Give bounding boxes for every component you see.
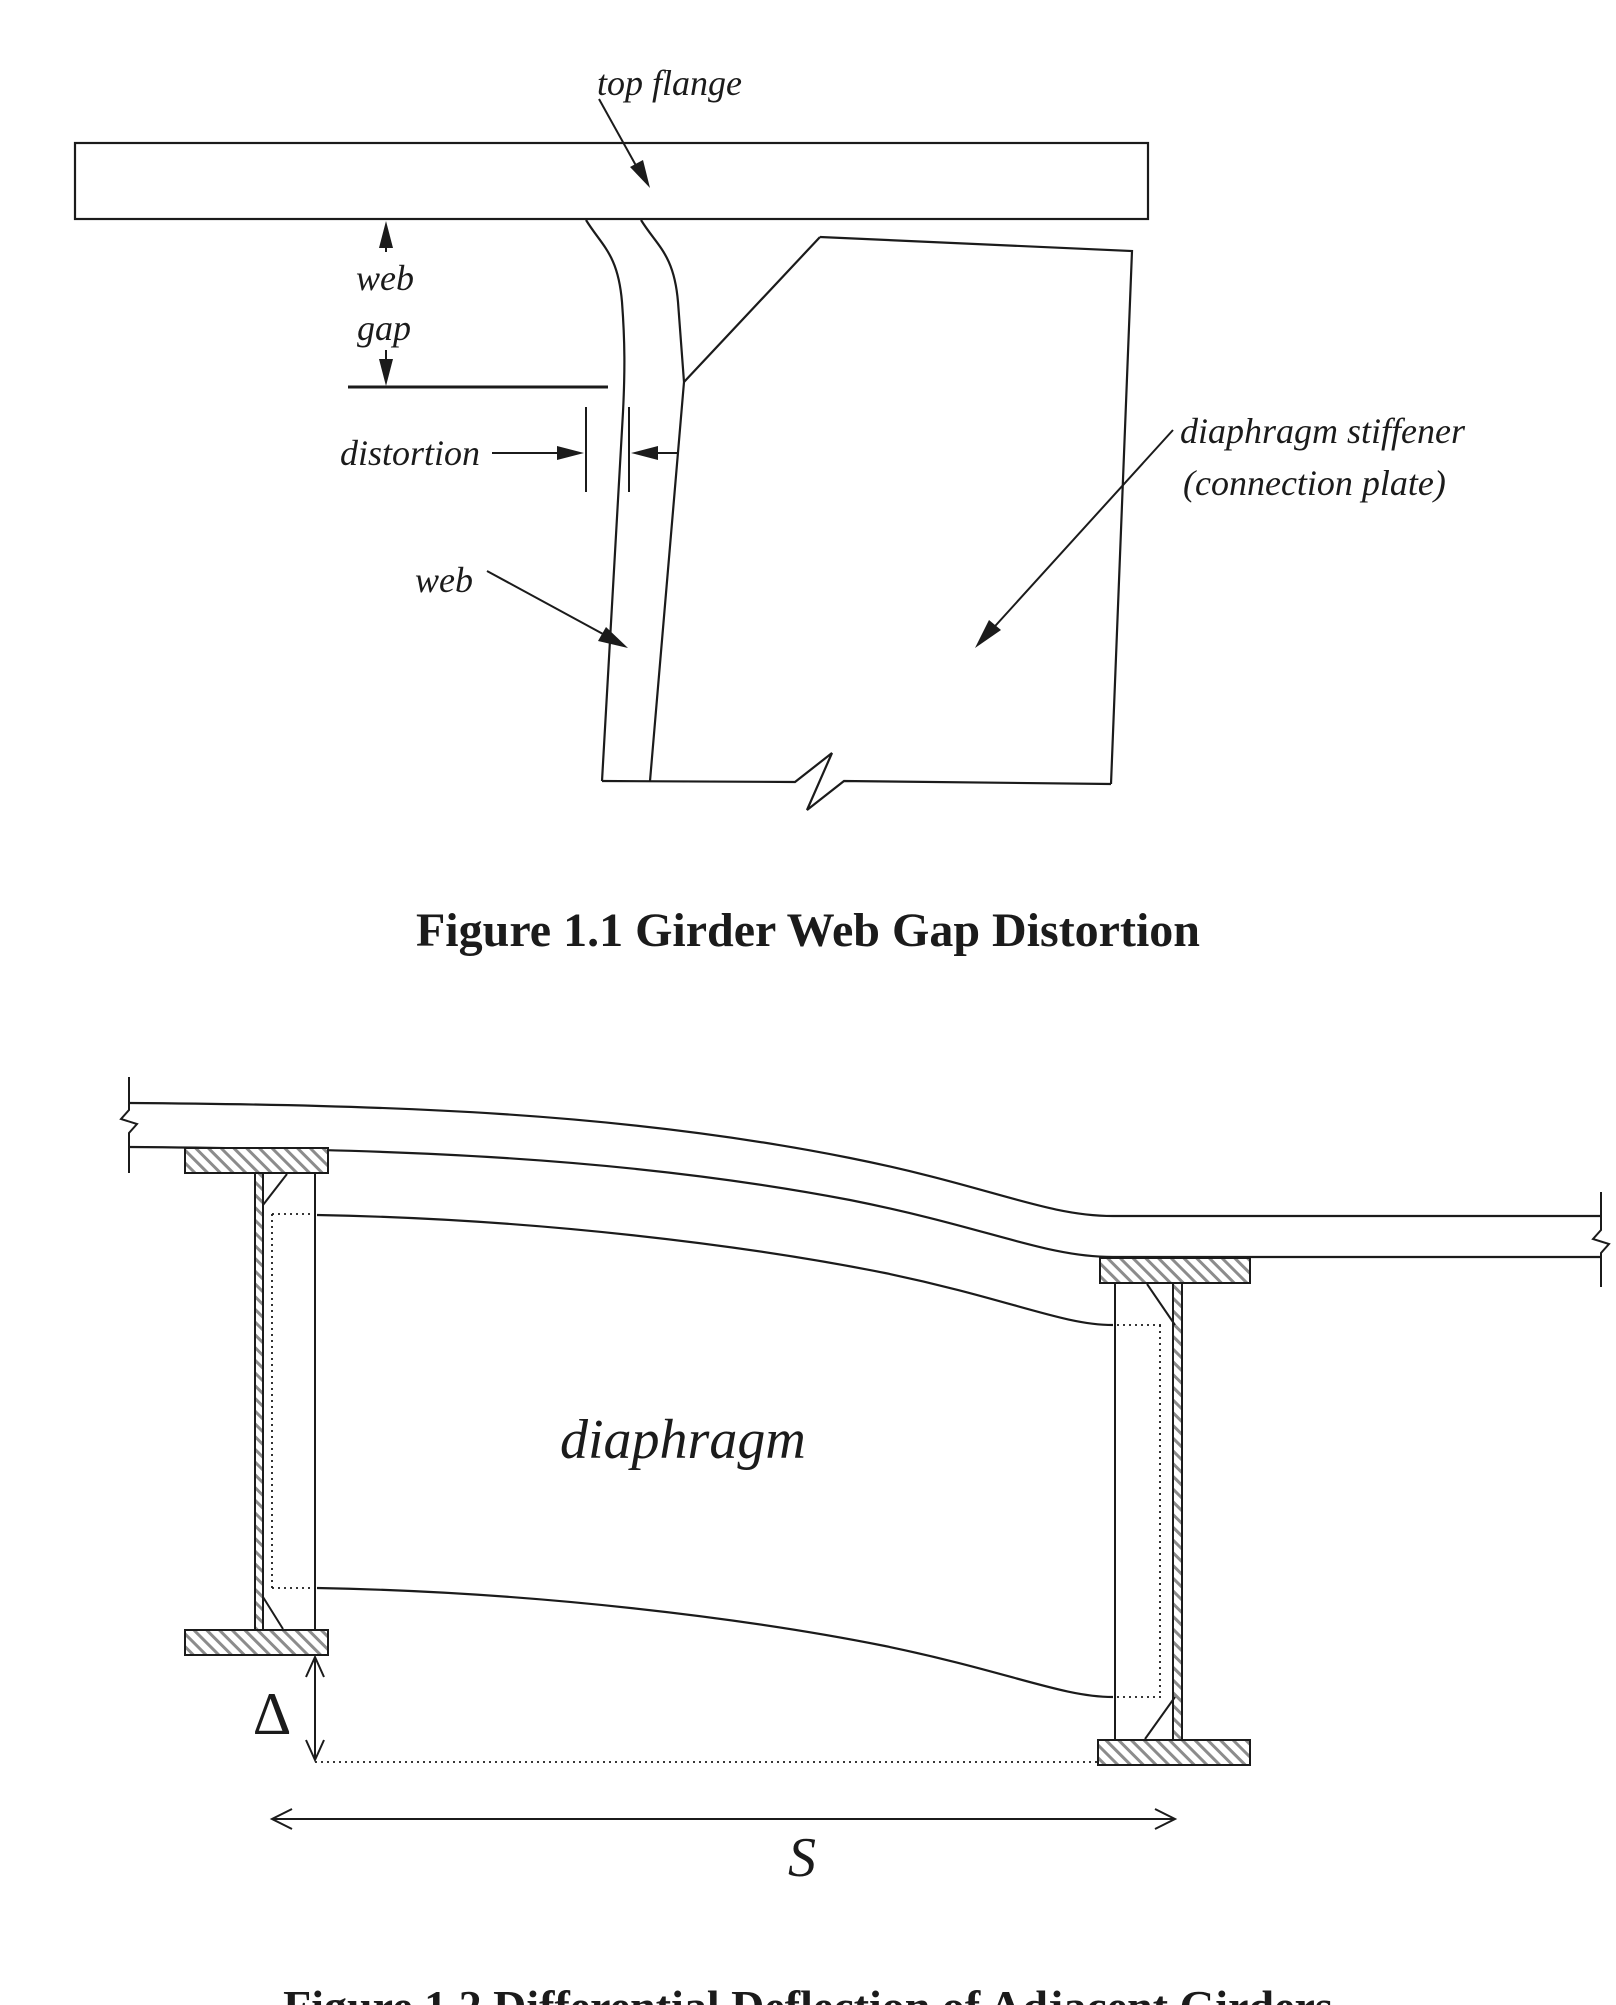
stiffener-label-line1: diaphragm stiffener [1180,411,1466,451]
delta-label: Δ [253,1681,292,1747]
web-left-edge-curve [586,220,624,781]
stiffener-leader-line [987,430,1173,635]
web-right-edge-curve [641,220,684,781]
right-girder-bottom-flange [1098,1740,1250,1765]
deck-top-surface-curve [129,1103,1601,1216]
web-gap-label-word1: web [356,258,414,298]
web-leader-line [487,571,603,634]
web-arrowhead-icon [598,627,628,648]
left-top-weld-line [263,1174,287,1205]
stiffener-clip-diagonal-edge [684,237,820,382]
deck-bottom-surface-curve [129,1147,1601,1257]
stiffener-top-and-right-edges [820,237,1132,784]
left-bottom-weld-line [263,1597,283,1629]
right-bottom-weld-line [1145,1697,1175,1739]
distortion-label: distortion [340,433,480,473]
figure-1-2-caption: Figure 1.2 Differential Deflection of Ad… [0,1981,1616,2005]
figure-1-1-girder-web-gap-distortion: top flange web gap distortion [75,63,1466,810]
deck-left-break-mark [121,1077,137,1173]
stiffener-label-line2: (connection plate) [1183,463,1446,503]
right-girder-top-flange [1100,1258,1250,1283]
left-girder-top-flange [185,1148,328,1173]
web-gap-label-word2: gap [357,308,411,348]
left-girder-bottom-flange [185,1630,328,1655]
right-girder-web [1173,1283,1182,1740]
web-gap-down-arrowhead-icon [379,359,393,386]
diaphragm-top-edge-curve [317,1215,1113,1325]
web-gap-up-arrowhead-icon [379,221,393,248]
diaphragm-bottom-edge-curve [317,1588,1113,1697]
distortion-right-arrowhead-icon [557,446,584,460]
top-flange-label: top flange [597,63,742,103]
engineering-figures-canvas: top flange web gap distortion [0,0,1616,2005]
diaphragm-label: diaphragm [560,1409,806,1471]
distortion-left-arrowhead-icon [631,446,658,460]
web-label: web [415,560,473,600]
top-flange-arrowhead-icon [630,160,650,188]
figure-1-1-caption: Figure 1.1 Girder Web Gap Distortion [0,903,1616,958]
left-girder-web [255,1173,263,1630]
deck-right-break-mark [1593,1192,1609,1287]
top-flange-plate [75,143,1148,219]
stiffener-bottom-edge-with-break [602,753,1111,810]
document-page: top flange web gap distortion [0,0,1616,2005]
right-top-weld-line [1147,1284,1175,1325]
spacing-label: S [788,1827,816,1889]
figure-1-2-differential-deflection: diaphragm Δ S [121,1077,1609,1889]
